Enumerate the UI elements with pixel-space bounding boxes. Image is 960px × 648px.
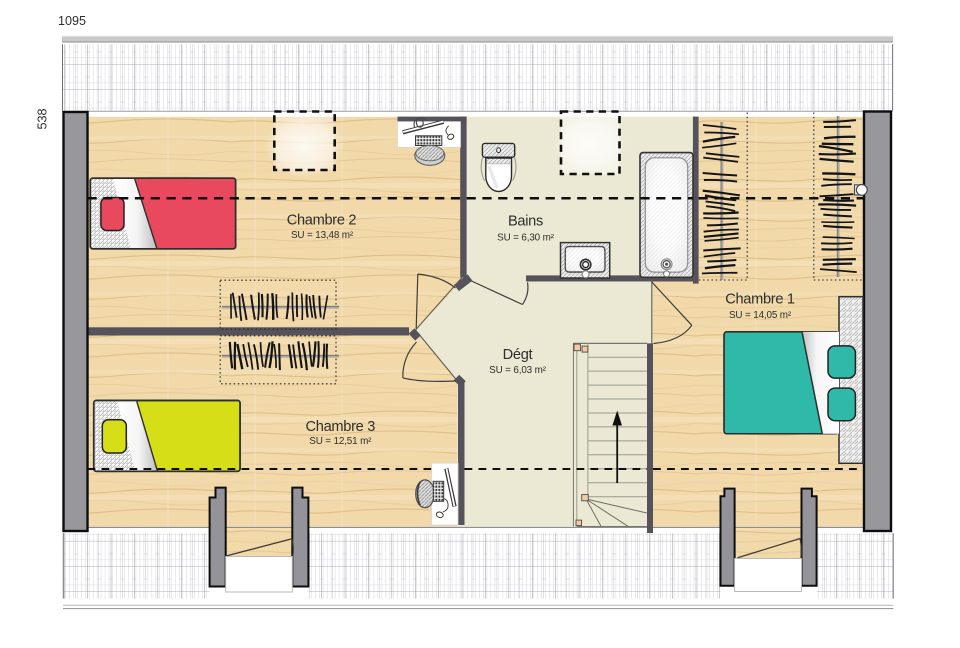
- svg-text:538: 538: [36, 108, 50, 129]
- svg-text:Chambre 2: Chambre 2: [287, 213, 357, 229]
- svg-text:Dégt: Dégt: [503, 347, 533, 363]
- svg-text:SU = 6,30 m²: SU = 6,30 m²: [497, 232, 555, 243]
- svg-text:SU = 14,05 m²: SU = 14,05 m²: [729, 310, 792, 321]
- svg-text:Bains: Bains: [508, 214, 543, 230]
- svg-text:SU = 6,03 m²: SU = 6,03 m²: [489, 365, 547, 376]
- svg-text:Chambre 1: Chambre 1: [725, 292, 795, 308]
- svg-text:Chambre 3: Chambre 3: [306, 419, 376, 435]
- svg-text:SU = 12,51 m²: SU = 12,51 m²: [309, 436, 372, 447]
- svg-text:SU = 13,48 m²: SU = 13,48 m²: [291, 230, 354, 241]
- svg-text:1095: 1095: [58, 14, 86, 28]
